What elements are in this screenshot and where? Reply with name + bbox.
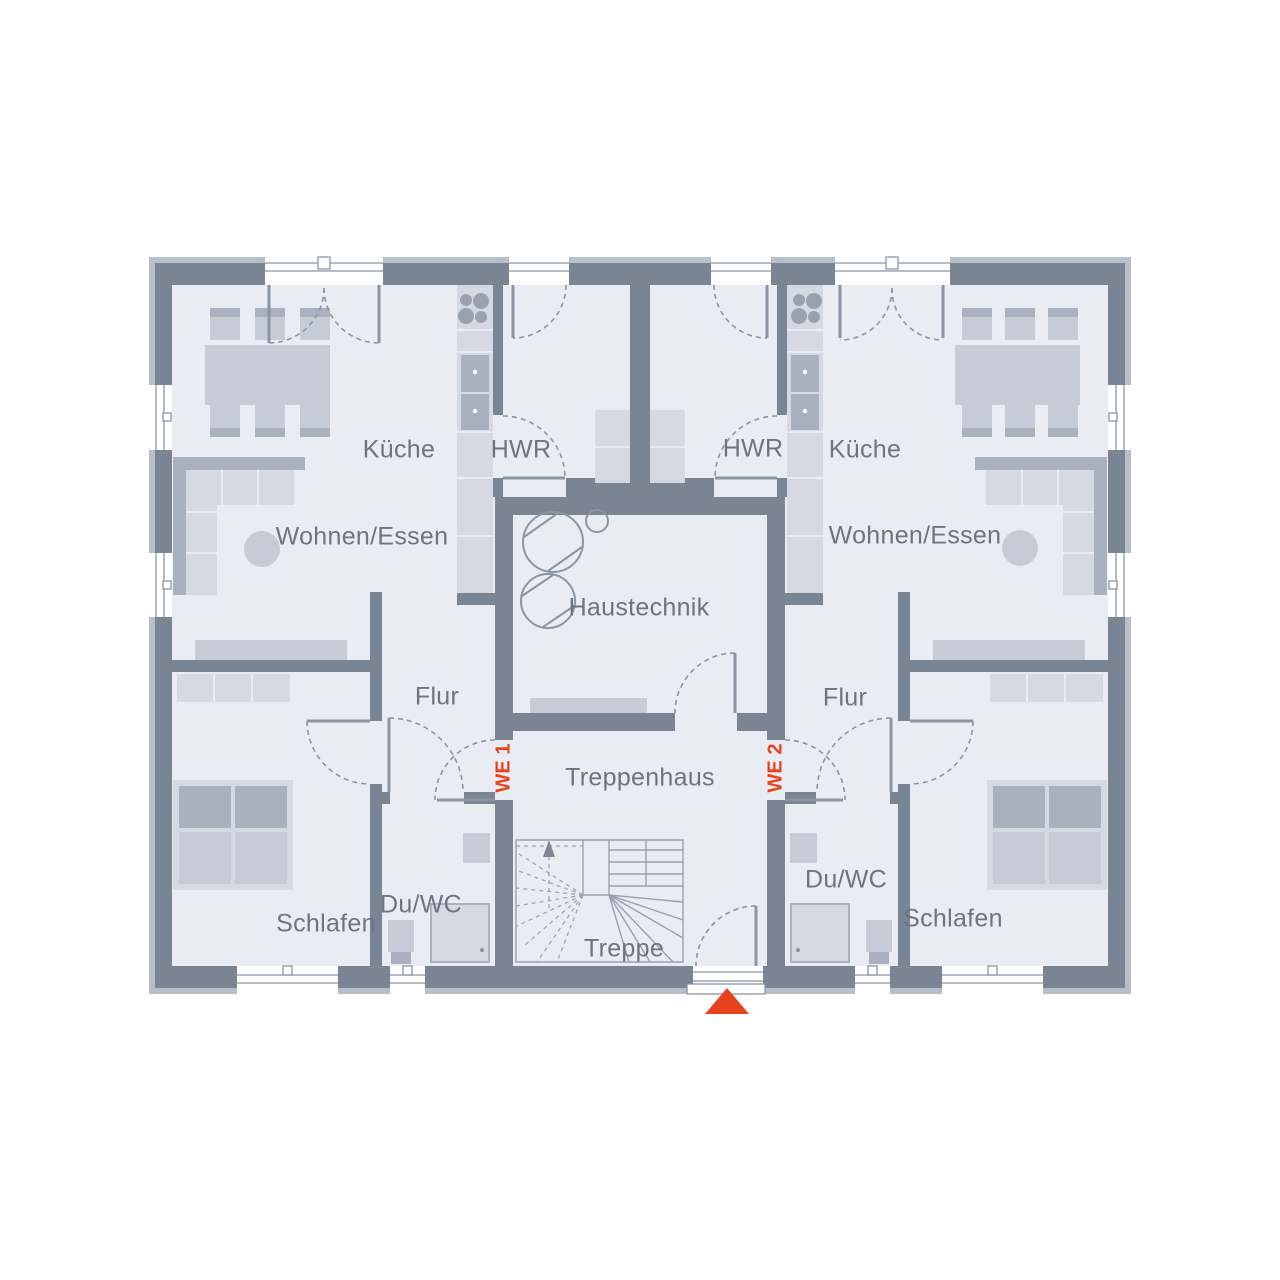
floor-plan: Küche HWR Wohnen/Essen Flur Schlafen Du/…	[0, 0, 1280, 1280]
room-label-wohnen-left: Wohnen/Essen	[276, 523, 449, 552]
room-label-duwc-left: Du/WC	[380, 891, 462, 920]
furniture-dividers	[186, 330, 1094, 702]
room-label-treppe: Treppe	[584, 935, 664, 964]
door-swing-arcs	[269, 285, 973, 966]
room-label-flur-left: Flur	[415, 683, 459, 712]
room-label-hwr-right: HWR	[723, 435, 784, 464]
room-label-duwc-right: Du/WC	[805, 866, 887, 895]
room-label-treppenhaus: Treppenhaus	[565, 764, 715, 793]
stair-symbol-dashed	[516, 846, 583, 962]
room-label-hwr-left: HWR	[491, 436, 552, 465]
stair-direction-arrow	[543, 840, 555, 857]
unit-label-we2: WE 2	[765, 744, 788, 793]
plan-lines-layer	[0, 0, 1280, 1280]
sink-dots	[473, 370, 807, 413]
room-label-wohnen-right: Wohnen/Essen	[829, 522, 1002, 551]
room-label-flur-right: Flur	[823, 684, 867, 713]
window-glyphs	[156, 257, 1124, 994]
room-label-kueche-left: Küche	[363, 436, 435, 465]
room-label-schlafen-right: Schlafen	[903, 905, 1003, 934]
room-label-haustechnik: Haustechnik	[569, 594, 710, 623]
unit-label-we1: WE 1	[493, 744, 516, 793]
door-leaves	[269, 285, 973, 966]
room-label-kueche-right: Küche	[829, 436, 901, 465]
room-label-schlafen-left: Schlafen	[276, 910, 376, 939]
